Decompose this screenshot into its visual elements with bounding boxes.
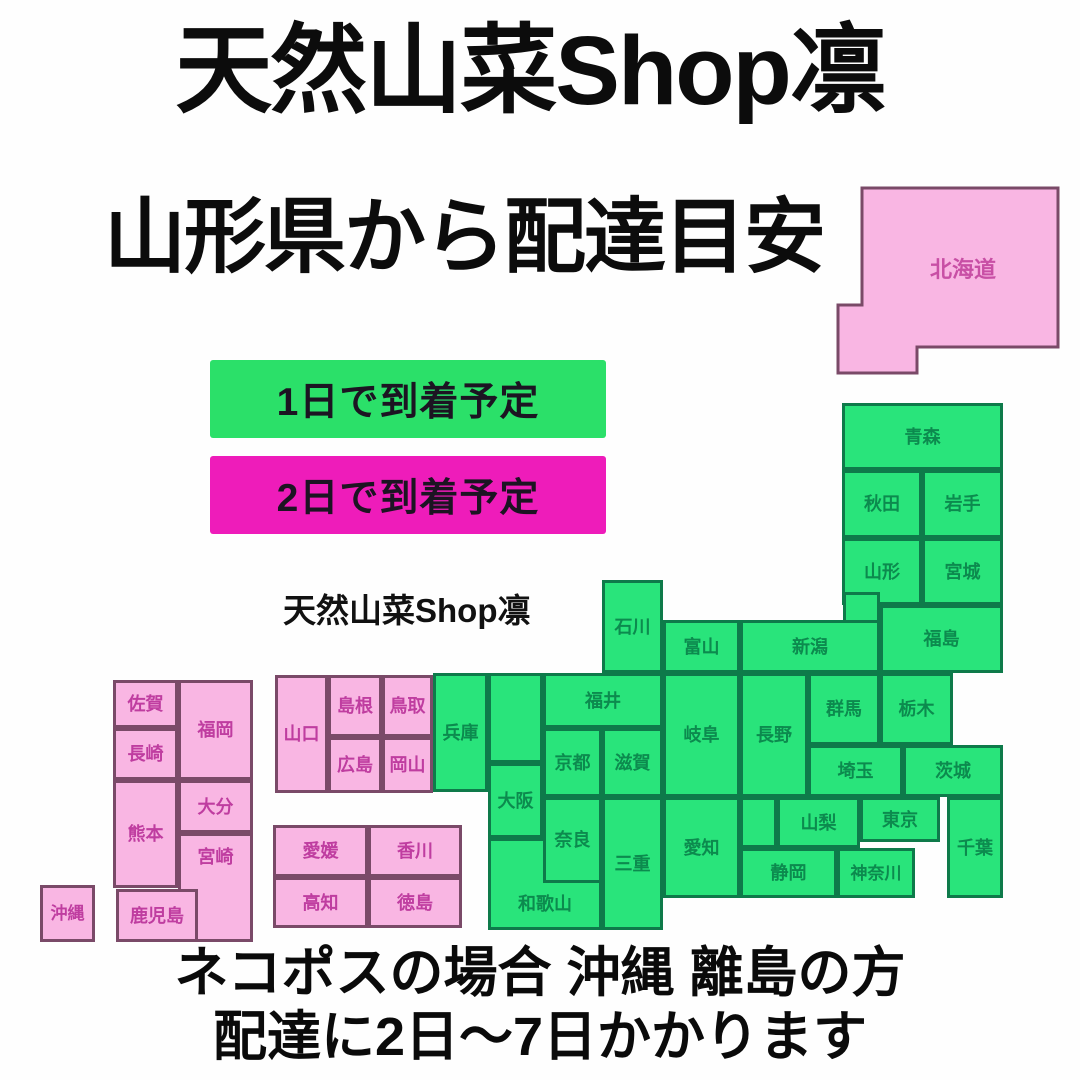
pref-ehime: 愛媛 xyxy=(273,825,368,877)
pref-fukuoka: 福岡 xyxy=(178,680,253,780)
pref-nagasaki: 長崎 xyxy=(113,728,178,780)
pref-tokyo: 東京 xyxy=(860,797,940,842)
pref-yamaguchi: 山口 xyxy=(275,675,328,793)
pref-kochi: 高知 xyxy=(273,877,368,928)
pref-hyogo: 兵庫 xyxy=(433,673,488,792)
pref-mie: 三重 xyxy=(602,797,663,930)
pref-fukushima: 福島 xyxy=(880,605,1003,673)
pref-saga: 佐賀 xyxy=(113,680,178,728)
pref-tochigi: 栃木 xyxy=(880,673,953,745)
pref-osaka: 大阪 xyxy=(488,763,543,838)
pref-ishikawa: 石川 xyxy=(602,580,663,673)
pref-kyoto: 京都 xyxy=(543,728,602,797)
pref-niigata-north-tab xyxy=(843,592,880,623)
pref-kagawa: 香川 xyxy=(368,825,462,877)
legend-1day: 1日で到着予定 xyxy=(210,360,606,438)
pref-hiroshima: 広島 xyxy=(328,737,382,793)
pref-nagano-south-tab xyxy=(740,797,777,848)
legend-2day: 2日で到着予定 xyxy=(210,456,606,534)
pref-okayama: 岡山 xyxy=(382,737,433,793)
page-subtitle: 山形県から配達目安 xyxy=(104,193,824,283)
pref-yamanashi: 山梨 xyxy=(777,797,860,848)
pref-shiga: 滋賀 xyxy=(602,728,663,797)
pref-tottori: 鳥取 xyxy=(382,675,433,737)
pref-okinawa: 沖縄 xyxy=(40,885,95,942)
pref-ibaraki: 茨城 xyxy=(903,745,1003,797)
pref-gunma: 群馬 xyxy=(808,673,880,745)
pref-toyama: 富山 xyxy=(663,620,740,673)
pref-akita: 秋田 xyxy=(842,470,922,538)
pref-kagoshima: 鹿児島 xyxy=(116,889,198,942)
pref-iwate: 岩手 xyxy=(922,470,1003,538)
pref-nara: 奈良 xyxy=(543,797,602,883)
pref-hokkaido-label: 北海道 xyxy=(930,257,996,282)
delivery-map-page: 天然山菜Shop凛 山形県から配達目安 1日で到着予定 2日で到着予定 天然山菜… xyxy=(0,0,1080,1080)
page-title: 天然山菜Shop凛 xyxy=(0,18,1060,125)
footer-note-line1: ネコポスの場合 沖縄 離島の方 xyxy=(0,944,1080,1003)
pref-tokushima: 徳島 xyxy=(368,877,462,928)
pref-shimane: 島根 xyxy=(328,675,382,737)
shop-watermark: 天然山菜Shop凛 xyxy=(283,584,530,632)
pref-aichi: 愛知 xyxy=(663,797,740,898)
pref-kumamoto: 熊本 xyxy=(113,780,178,888)
pref-gifu: 岐阜 xyxy=(663,673,740,797)
pref-niigata: 新潟 xyxy=(740,620,880,673)
pref-aomori: 青森 xyxy=(842,403,1003,470)
pref-oita: 大分 xyxy=(178,780,253,833)
pref-kyoto-north-tab xyxy=(488,673,543,763)
pref-saitama: 埼玉 xyxy=(808,745,903,797)
footer-note-line2: 配達に2日〜7日かかります xyxy=(0,1008,1080,1067)
pref-kanagawa: 神奈川 xyxy=(837,848,915,898)
pref-miyagi: 宮城 xyxy=(922,538,1003,605)
pref-fukui: 福井 xyxy=(543,673,663,728)
pref-hokkaido: 北海道 xyxy=(835,185,1065,378)
pref-chiba: 千葉 xyxy=(947,797,1003,898)
pref-nagano: 長野 xyxy=(740,673,808,797)
pref-shizuoka: 静岡 xyxy=(740,848,837,898)
